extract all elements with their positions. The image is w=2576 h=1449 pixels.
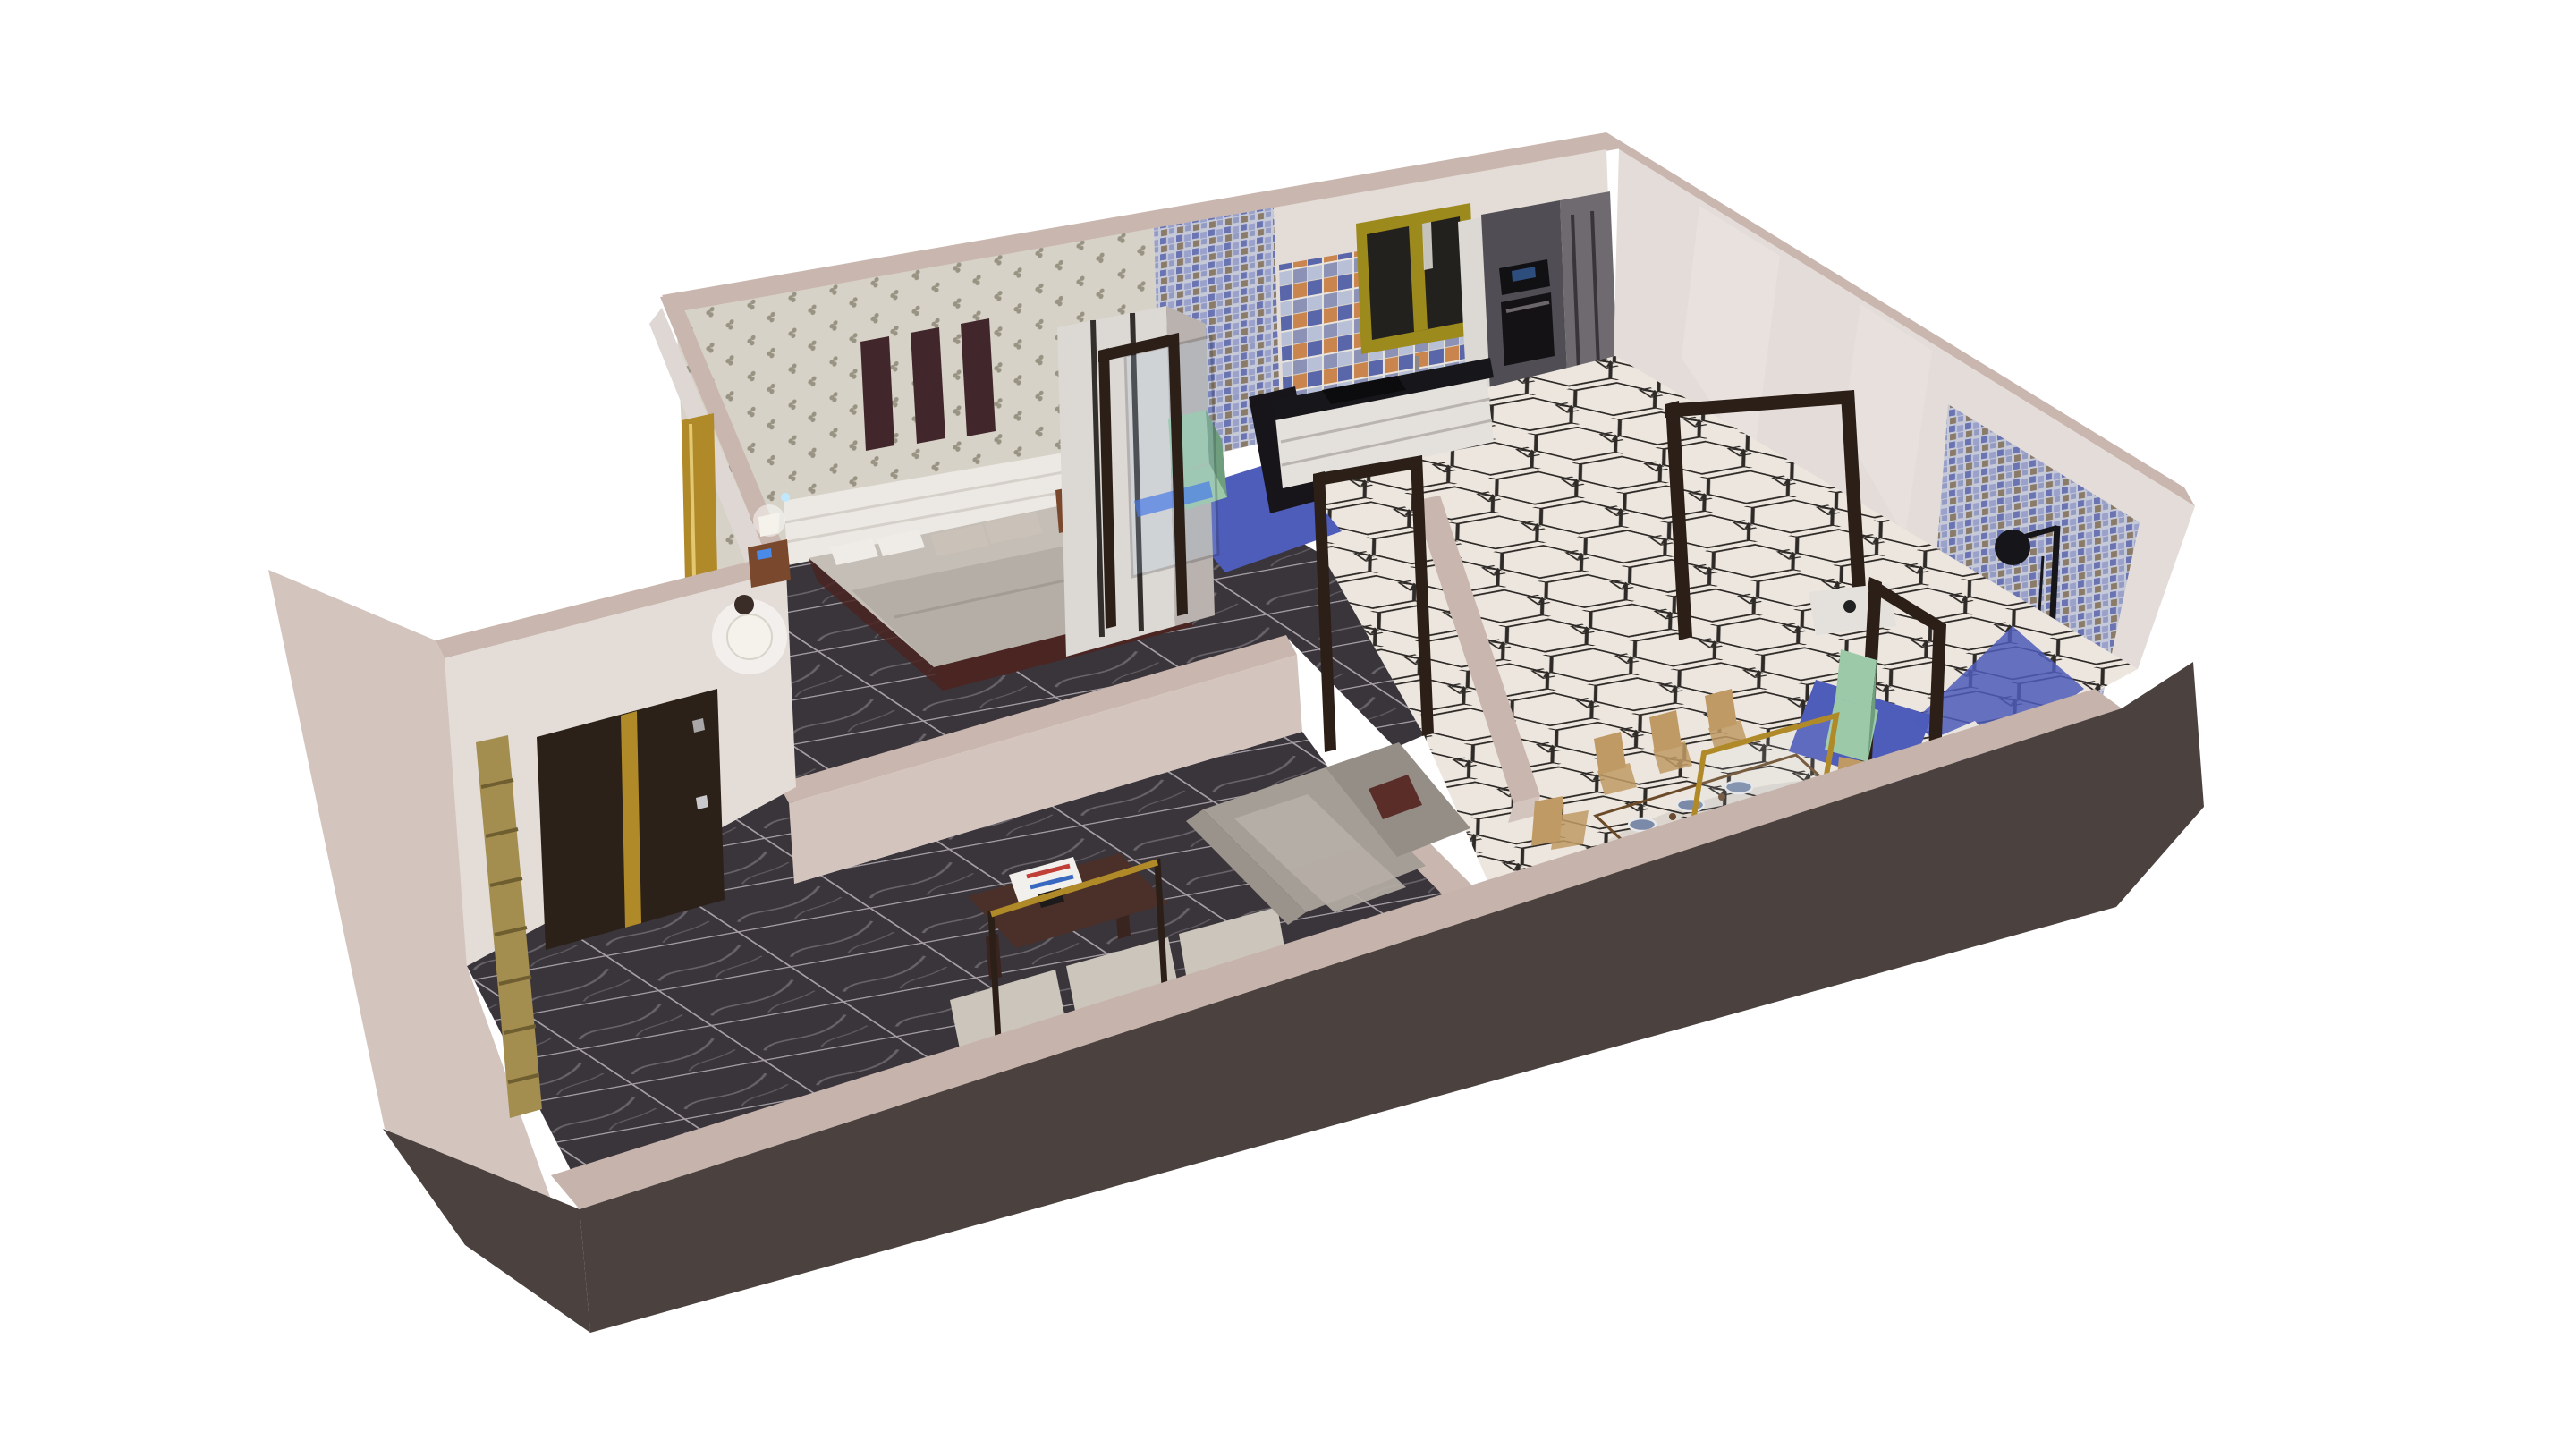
floor-plan-render: [0, 0, 2576, 1449]
art-panel: [860, 336, 894, 451]
brass-wall-trim: [682, 413, 717, 583]
shower-head: [1995, 530, 2030, 565]
lamp-cap: [734, 595, 754, 614]
headboard-led: [781, 493, 790, 502]
render-canvas: [0, 0, 2576, 1449]
bedroom-art-panels: [860, 318, 996, 451]
vanity-basin: [1843, 600, 1856, 613]
lamp-sphere: [727, 614, 772, 659]
nightstand: [748, 539, 791, 588]
window-highlight: [1422, 222, 1433, 270]
bowl: [1669, 813, 1676, 820]
kitchen-window: [1356, 203, 1476, 354]
